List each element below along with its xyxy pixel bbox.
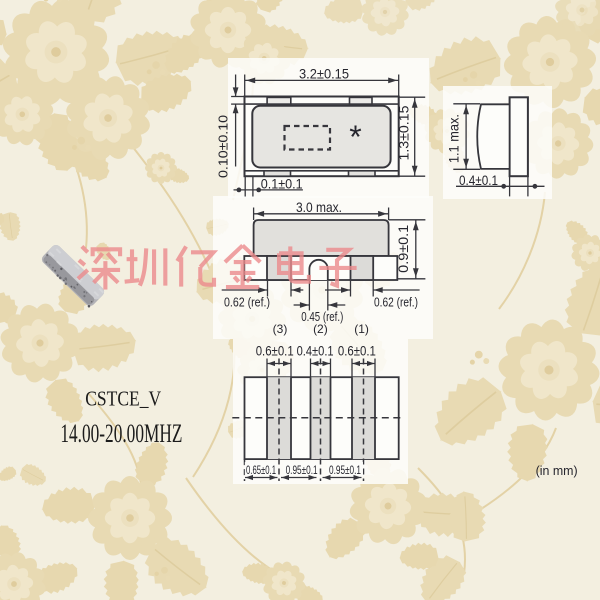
svg-text:14.00-20.00MHZ: 14.00-20.00MHZ <box>60 419 182 448</box>
svg-text:CSTCE_V: CSTCE_V <box>85 387 161 411</box>
